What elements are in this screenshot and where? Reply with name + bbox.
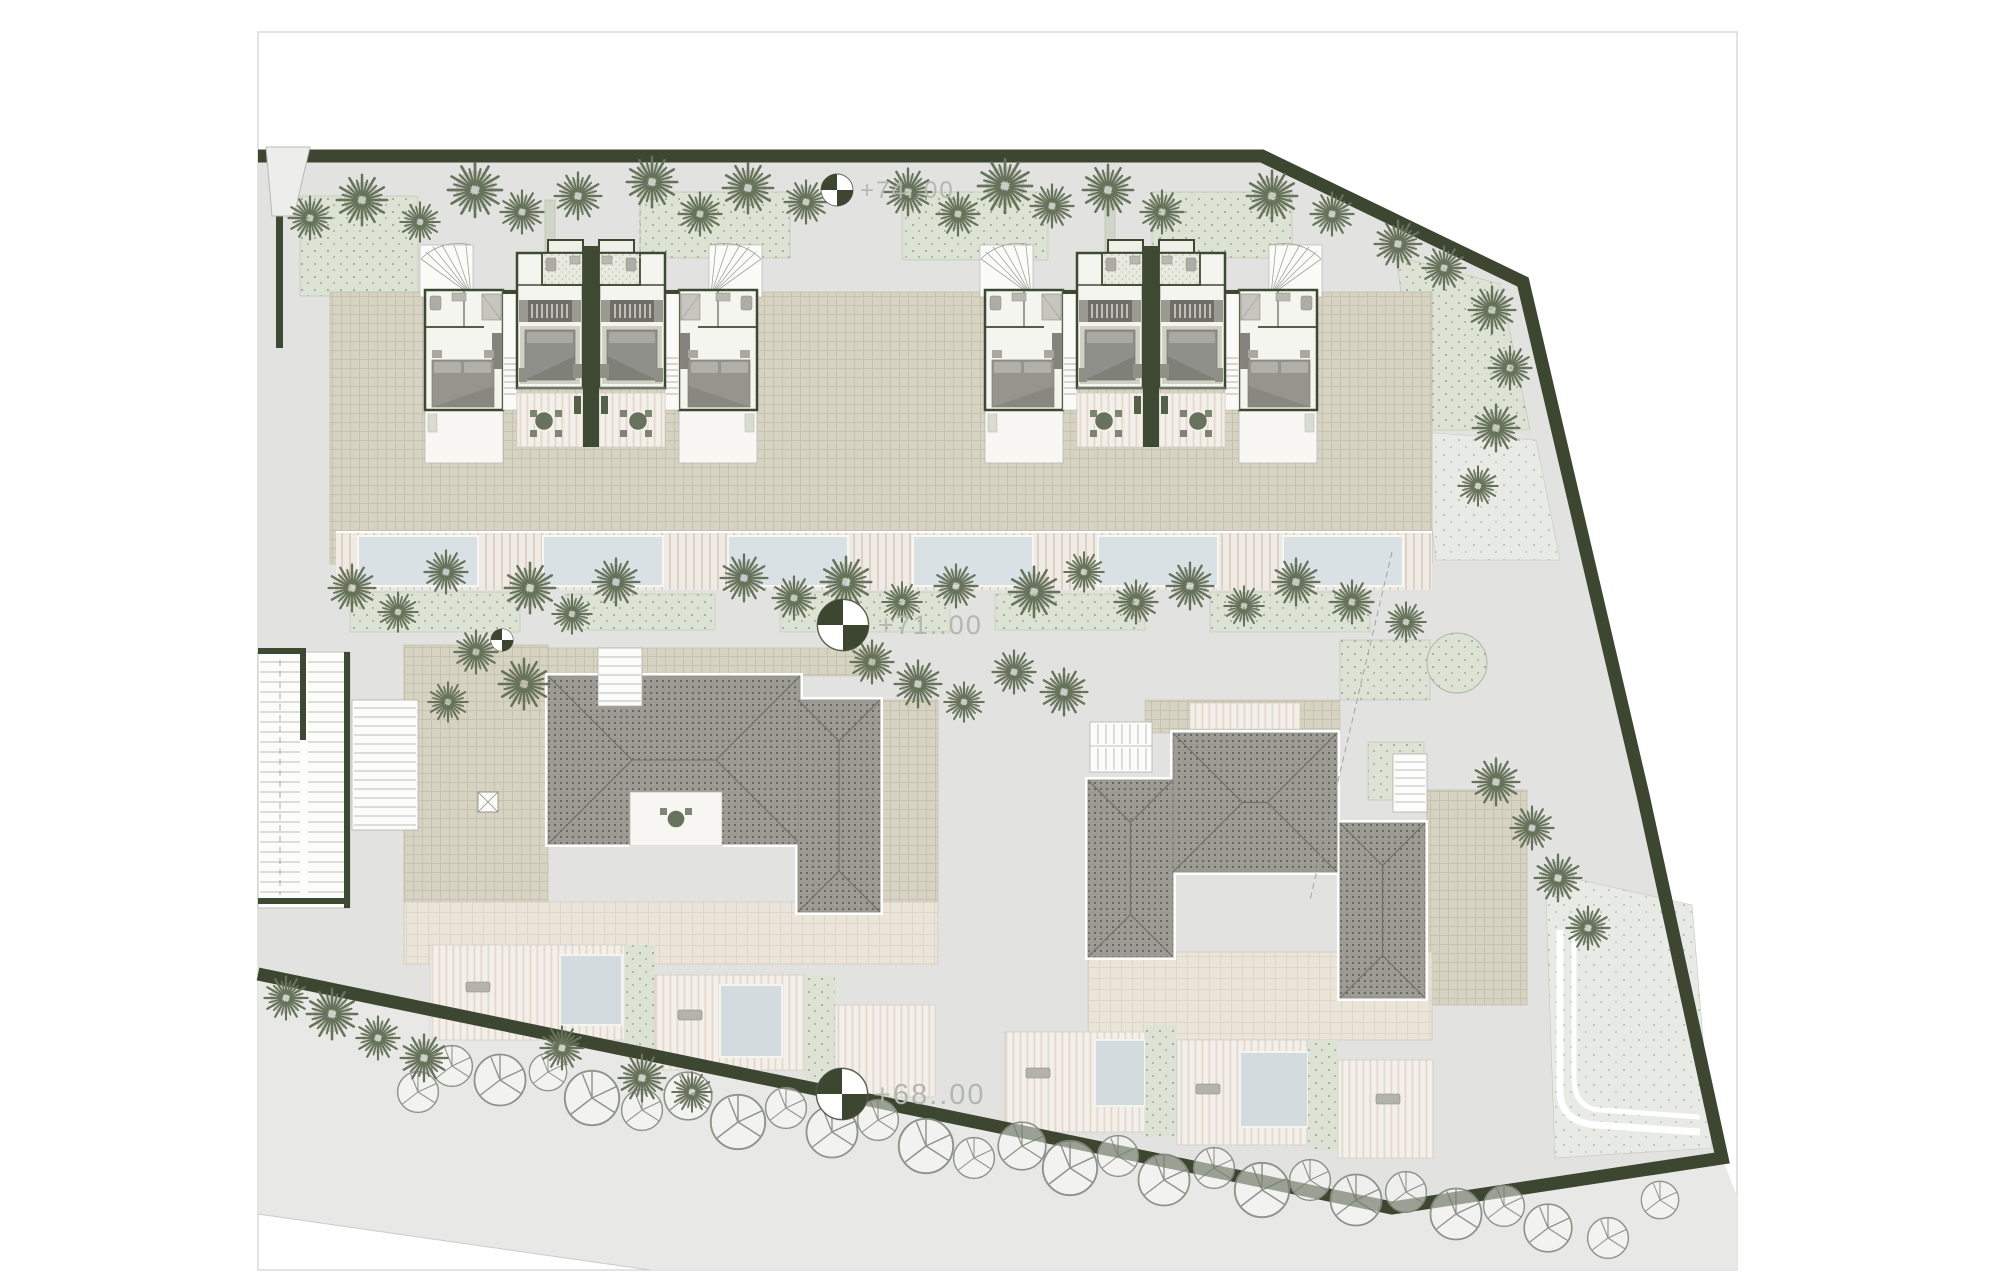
site-plan-page: +74..00 +71..00 +68..00 (0, 0, 2000, 1276)
round-lawn (1427, 633, 1487, 693)
upper-villa-cluster-west (420, 240, 762, 463)
pool (913, 536, 1033, 586)
elevation-marker-74: +74..00 (821, 174, 955, 206)
elevation-label-71: +71..00 (878, 610, 983, 640)
elevation-label-68: +68..00 (874, 1079, 986, 1111)
pool-band (336, 532, 1432, 590)
site-plan-drawing: +74..00 +71..00 +68..00 (0, 0, 2000, 1276)
upper-villa-cluster-east (980, 240, 1322, 463)
survey-marker-small (491, 629, 513, 651)
elevation-label-74: +74..00 (860, 177, 955, 204)
